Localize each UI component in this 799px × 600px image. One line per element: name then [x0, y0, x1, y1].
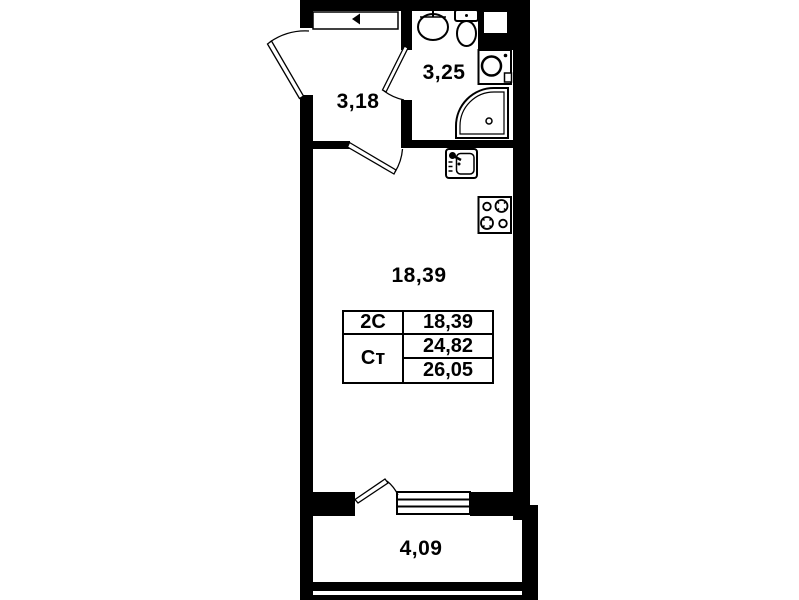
wall-bathroom-divider-top	[401, 11, 412, 50]
floor-plan-drawing	[0, 0, 799, 600]
entrance-door-marker-icon	[313, 12, 398, 29]
wall-room-bottom-right	[470, 492, 530, 516]
area-value-cell: 26,05	[403, 358, 493, 383]
bathroom-door-icon	[383, 46, 409, 100]
unit-type-cell: 2С	[343, 311, 403, 334]
wall-left-stub	[300, 11, 313, 28]
balcony-window-icon	[397, 492, 470, 514]
wall-balcony-bottom-outer	[300, 582, 538, 591]
sink-icon	[418, 10, 448, 40]
area-value-cell: 24,82	[403, 334, 493, 358]
washing-machine-icon	[479, 50, 512, 84]
room-door-icon	[348, 143, 403, 175]
wall-room-bottom-left	[300, 492, 355, 516]
unit-type-cell: Ст	[343, 334, 403, 383]
entrance-door-icon	[268, 31, 310, 99]
wall-balcony-bottom-inner	[300, 595, 538, 600]
shower-icon	[456, 88, 508, 138]
balcony-area-label: 4,09	[396, 538, 446, 560]
vent-shaft	[484, 12, 507, 33]
apartment-legend-table: 2С 18,39 Ст 24,82 26,05	[342, 310, 494, 384]
wall-right	[513, 0, 530, 520]
wall-bathroom-bottom	[401, 140, 513, 148]
floor-plan: 3,18 3,25 18,39 4,09 2С 18,39 Ст 24,82 2…	[0, 0, 799, 600]
living-room-area-label: 18,39	[389, 265, 449, 287]
stove-icon	[479, 197, 512, 233]
hallway-area-label: 3,18	[333, 91, 383, 113]
toilet-icon	[455, 10, 478, 46]
bathroom-area-label: 3,25	[419, 62, 469, 84]
wall-hallway-bottom	[313, 141, 350, 149]
kitchen-sink-icon	[446, 149, 477, 178]
balcony-door-icon	[355, 479, 398, 503]
wall-left	[300, 95, 313, 600]
area-value-cell: 18,39	[403, 311, 493, 334]
